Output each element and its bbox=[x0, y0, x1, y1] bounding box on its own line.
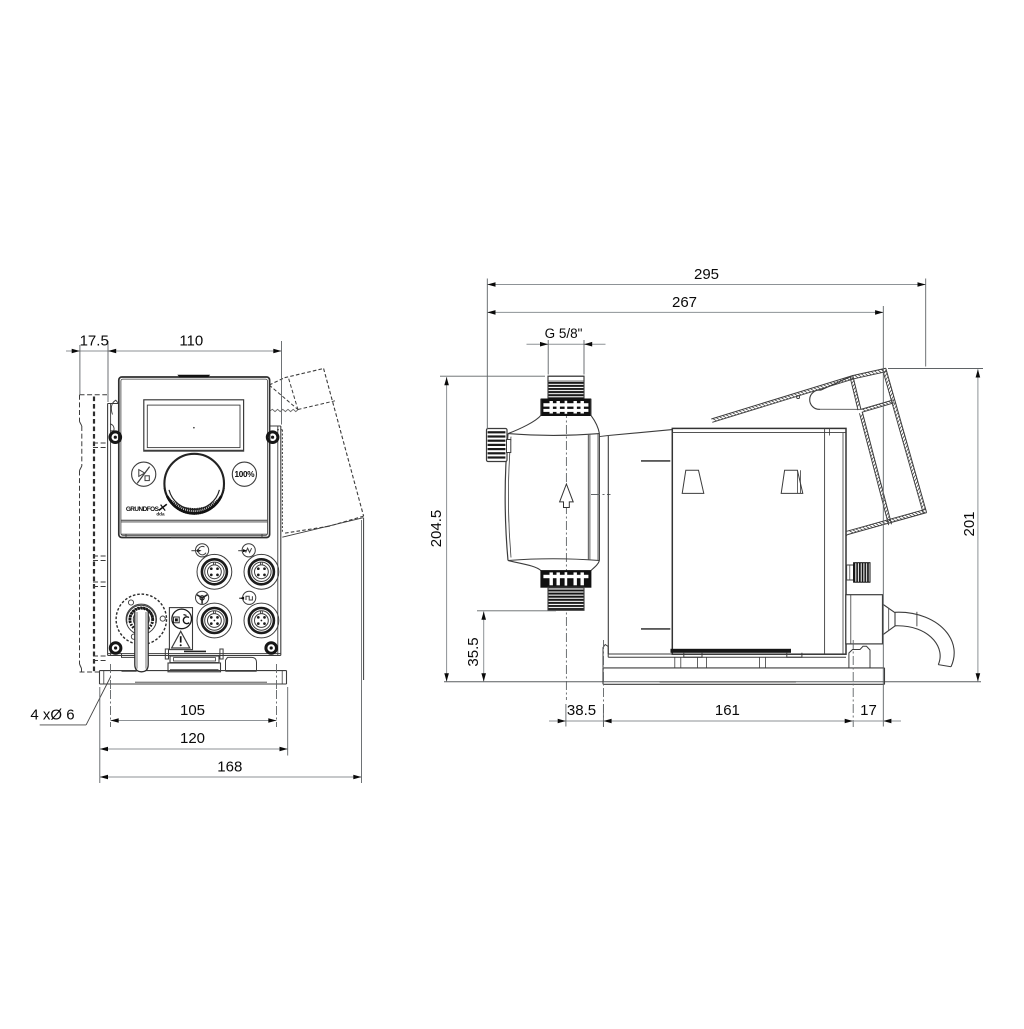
svg-text:4 xØ 6: 4 xØ 6 bbox=[30, 707, 74, 724]
svg-text:295: 295 bbox=[694, 266, 719, 283]
svg-text:168: 168 bbox=[217, 758, 242, 775]
svg-text:201: 201 bbox=[961, 511, 978, 536]
svg-text:120: 120 bbox=[180, 730, 205, 747]
svg-text:G 5/8": G 5/8" bbox=[545, 326, 583, 341]
svg-text:100%: 100% bbox=[235, 470, 256, 479]
svg-text:110: 110 bbox=[179, 333, 203, 350]
svg-text:35.5: 35.5 bbox=[465, 637, 482, 666]
svg-text:161: 161 bbox=[715, 702, 740, 719]
svg-text:105: 105 bbox=[180, 702, 205, 719]
svg-text:267: 267 bbox=[672, 294, 697, 311]
svg-text:38.5: 38.5 bbox=[567, 702, 596, 719]
svg-text:17.5: 17.5 bbox=[80, 333, 109, 350]
svg-text:dda: dda bbox=[156, 511, 165, 516]
svg-text:GRUNDFOS: GRUNDFOS bbox=[126, 506, 160, 513]
svg-text:204.5: 204.5 bbox=[428, 510, 445, 548]
svg-text:17: 17 bbox=[860, 702, 877, 719]
